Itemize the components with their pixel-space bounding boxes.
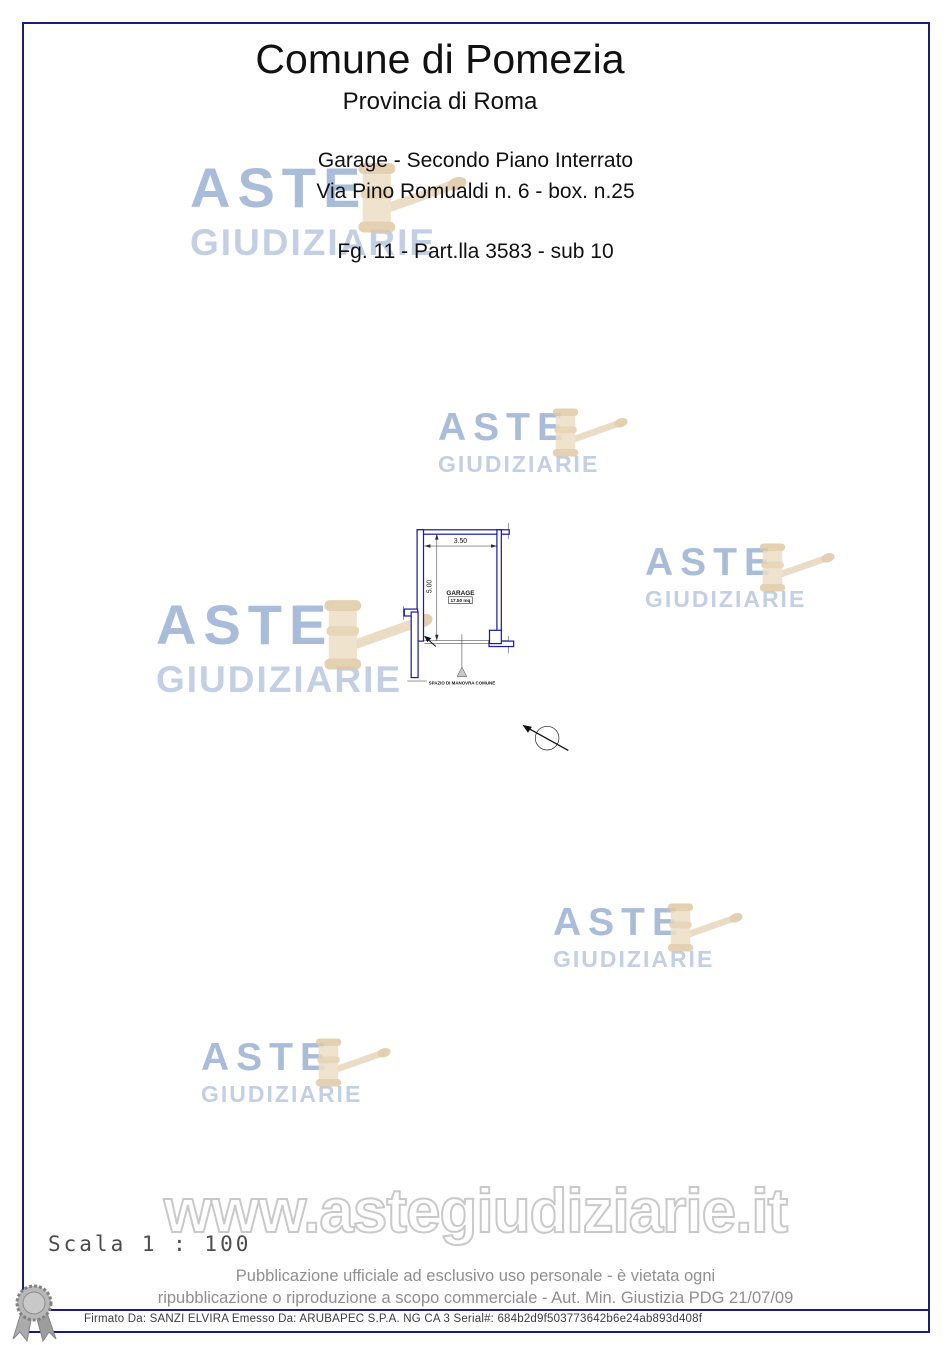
signature-divider — [22, 1309, 930, 1311]
property-description: Garage - Secondo Piano Interrato — [0, 149, 951, 173]
footer-disclaimer-line2: ripubblicazione o riproduzione a scopo c… — [0, 1289, 951, 1308]
watermark-aste-giudiziarie: ASTE GIUDIZIARIE — [201, 1038, 362, 1106]
scale-label: Scala 1 : 100 — [48, 1232, 251, 1256]
room-label: GARAGE — [446, 590, 475, 597]
cadastral-reference: Fg. 11 - Part.lla 3583 - sub 10 — [0, 240, 951, 264]
door-arrow — [424, 636, 436, 647]
seal-ribbon-icon — [5, 1281, 63, 1345]
north-arrow-icon — [523, 725, 569, 751]
property-address: Via Pino Romualdi n. 6 - box. n.25 — [0, 180, 951, 204]
reference-triangle-icon — [457, 667, 467, 676]
gavel-icon — [540, 404, 630, 464]
gavel-icon — [747, 539, 837, 599]
room-area-label: 17.50 mq — [450, 598, 470, 603]
document-page: ASTE GIUDIZIARIE ASTE GIUDIZIARIE ASTE G… — [0, 0, 951, 1345]
dim-height-label: 5.00 — [426, 580, 433, 594]
watermark-aste-giudiziarie: ASTE GIUDIZIARIE — [438, 408, 599, 476]
digital-signature-text: Firmato Da: SANZI ELVIRA Emesso Da: ARUB… — [84, 1313, 702, 1325]
footer-disclaimer-line1: Pubblicazione ufficiale ad esclusivo uso… — [0, 1267, 951, 1286]
dim-width-label: 3.50 — [454, 538, 468, 545]
page-title: Comune di Pomezia — [0, 36, 880, 83]
floor-plan: 3.50 5.00 GARAGE 17.50 mq SPAZIO DI MANO… — [280, 515, 700, 1015]
gavel-icon — [303, 1034, 393, 1094]
manoeuvre-space-label: SPAZIO DI MANOVRA COMUNE — [429, 680, 496, 685]
dimension-arrowheads — [424, 534, 496, 641]
page-subtitle: Provincia di Roma — [0, 88, 880, 116]
